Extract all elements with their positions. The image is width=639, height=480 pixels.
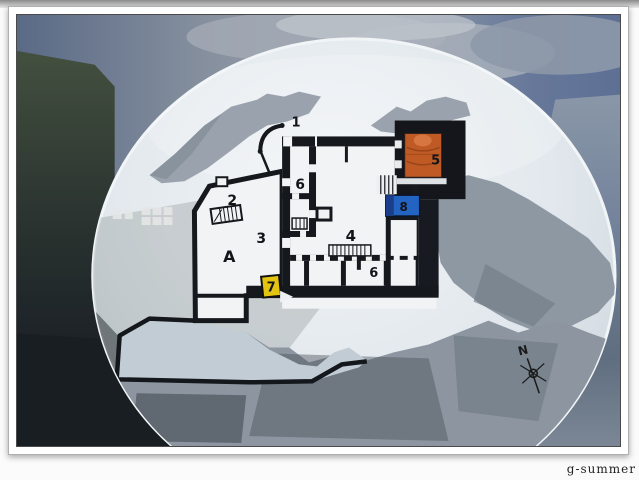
stairs-bastion (377, 175, 397, 194)
room-5-highlight (414, 134, 432, 146)
map-sign-scene: 1 2 3 4 5 6 6 7 8 A N (17, 15, 620, 446)
stairs-hall (329, 245, 371, 256)
casemate-wall-1 (304, 261, 309, 286)
label-2: 2 (227, 193, 237, 209)
bastion-window-2 (395, 160, 402, 168)
bastion-ledge (397, 178, 447, 184)
east-room-2 (391, 260, 416, 286)
casemate-wall-2 (341, 261, 346, 286)
label-6-lower: 6 (369, 266, 378, 281)
interior-wall-h2 (282, 231, 316, 237)
annex-tab (216, 177, 227, 186)
wall-stub-1 (345, 146, 348, 162)
label-1: 1 (292, 115, 301, 130)
compass-hub-dot (532, 372, 534, 374)
bastion-window-1 (395, 140, 402, 148)
label-5: 5 (431, 153, 440, 168)
label-3: 3 (256, 231, 266, 247)
label-a: A (223, 247, 236, 266)
watermark: g-summer (567, 462, 636, 476)
interior-wall-v (309, 146, 316, 235)
east-thick-wall (419, 199, 439, 295)
pillar-shaft (317, 208, 331, 220)
label-8: 8 (400, 200, 408, 214)
wall-stub-2 (357, 255, 361, 270)
room-8-shade (386, 195, 394, 216)
stairs-small (292, 218, 307, 229)
stairs-room2 (211, 205, 243, 224)
annex-outline (194, 171, 282, 320)
wall-end-2 (280, 123, 285, 128)
west-wall (282, 136, 290, 295)
label-6-upper: 6 (295, 177, 305, 193)
label-7: 7 (267, 281, 276, 296)
photo-frame: 1 2 3 4 5 6 6 7 8 A N (8, 6, 629, 455)
photo: 1 2 3 4 5 6 6 7 8 A N (16, 14, 621, 447)
sign-artwork: 1 2 3 4 5 6 6 7 8 A N (93, 55, 620, 446)
label-4: 4 (346, 227, 356, 245)
east-room-1 (391, 220, 417, 256)
casemate-wall-3 (384, 261, 389, 286)
